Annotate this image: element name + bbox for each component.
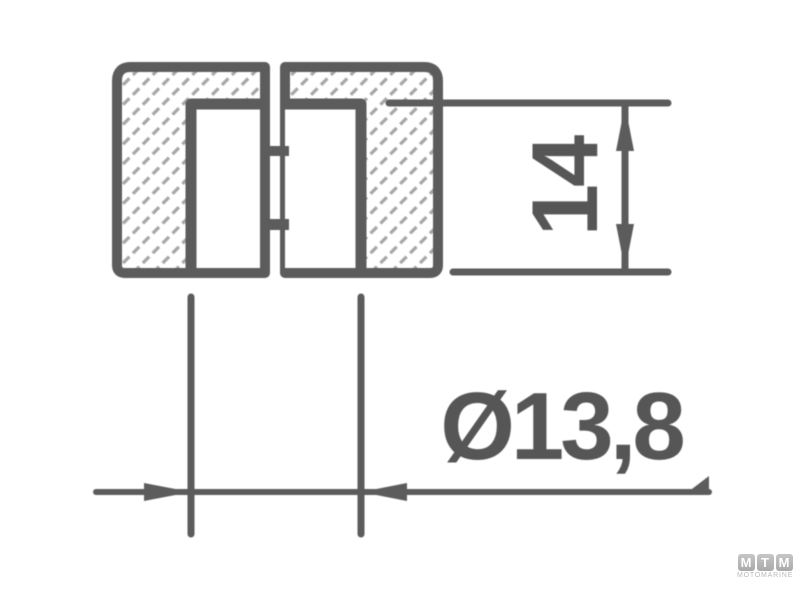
- drawing-canvas: 14 Ø13,8 M T M MOTOMARINE: [0, 0, 800, 600]
- motomarine-logo: M T M MOTOMARINE: [734, 554, 796, 579]
- logo-tiles: M T M: [734, 554, 796, 571]
- diameter-arrow-right-icon: [144, 483, 191, 501]
- height-arrow-down-icon: [616, 224, 634, 270]
- slot-bridge-top: [263, 146, 289, 156]
- logo-tile-m1: M: [738, 554, 755, 571]
- logo-tile-m2: M: [776, 554, 793, 571]
- height-arrow-up-icon: [616, 105, 634, 151]
- diameter-arrow-left-icon: [361, 483, 407, 501]
- right-cap-bore: [285, 104, 361, 268]
- height-dimension-label: 14: [512, 135, 617, 236]
- left-cap-bore: [191, 104, 260, 268]
- logo-tile-t: T: [757, 554, 774, 571]
- slot-bridge-bottom: [263, 219, 289, 230]
- technical-drawing: 14 Ø13,8: [0, 0, 800, 600]
- diameter-dimension-label: Ø13,8: [440, 373, 683, 480]
- logo-subtitle: MOTOMARINE: [734, 572, 796, 579]
